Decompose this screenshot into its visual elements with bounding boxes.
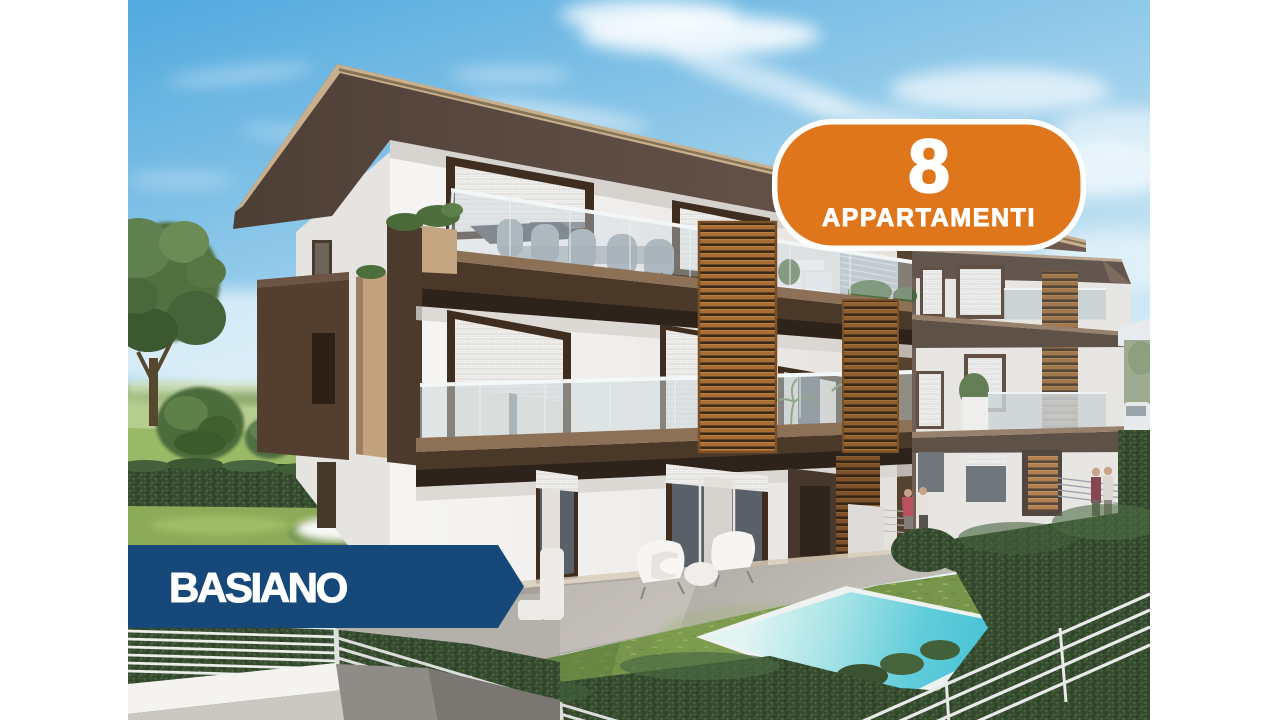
svg-text:8: 8 [908, 124, 950, 208]
svg-text:BASIANO: BASIANO [169, 564, 347, 611]
svg-text:APPARTAMENTI: APPARTAMENTI [822, 204, 1036, 232]
